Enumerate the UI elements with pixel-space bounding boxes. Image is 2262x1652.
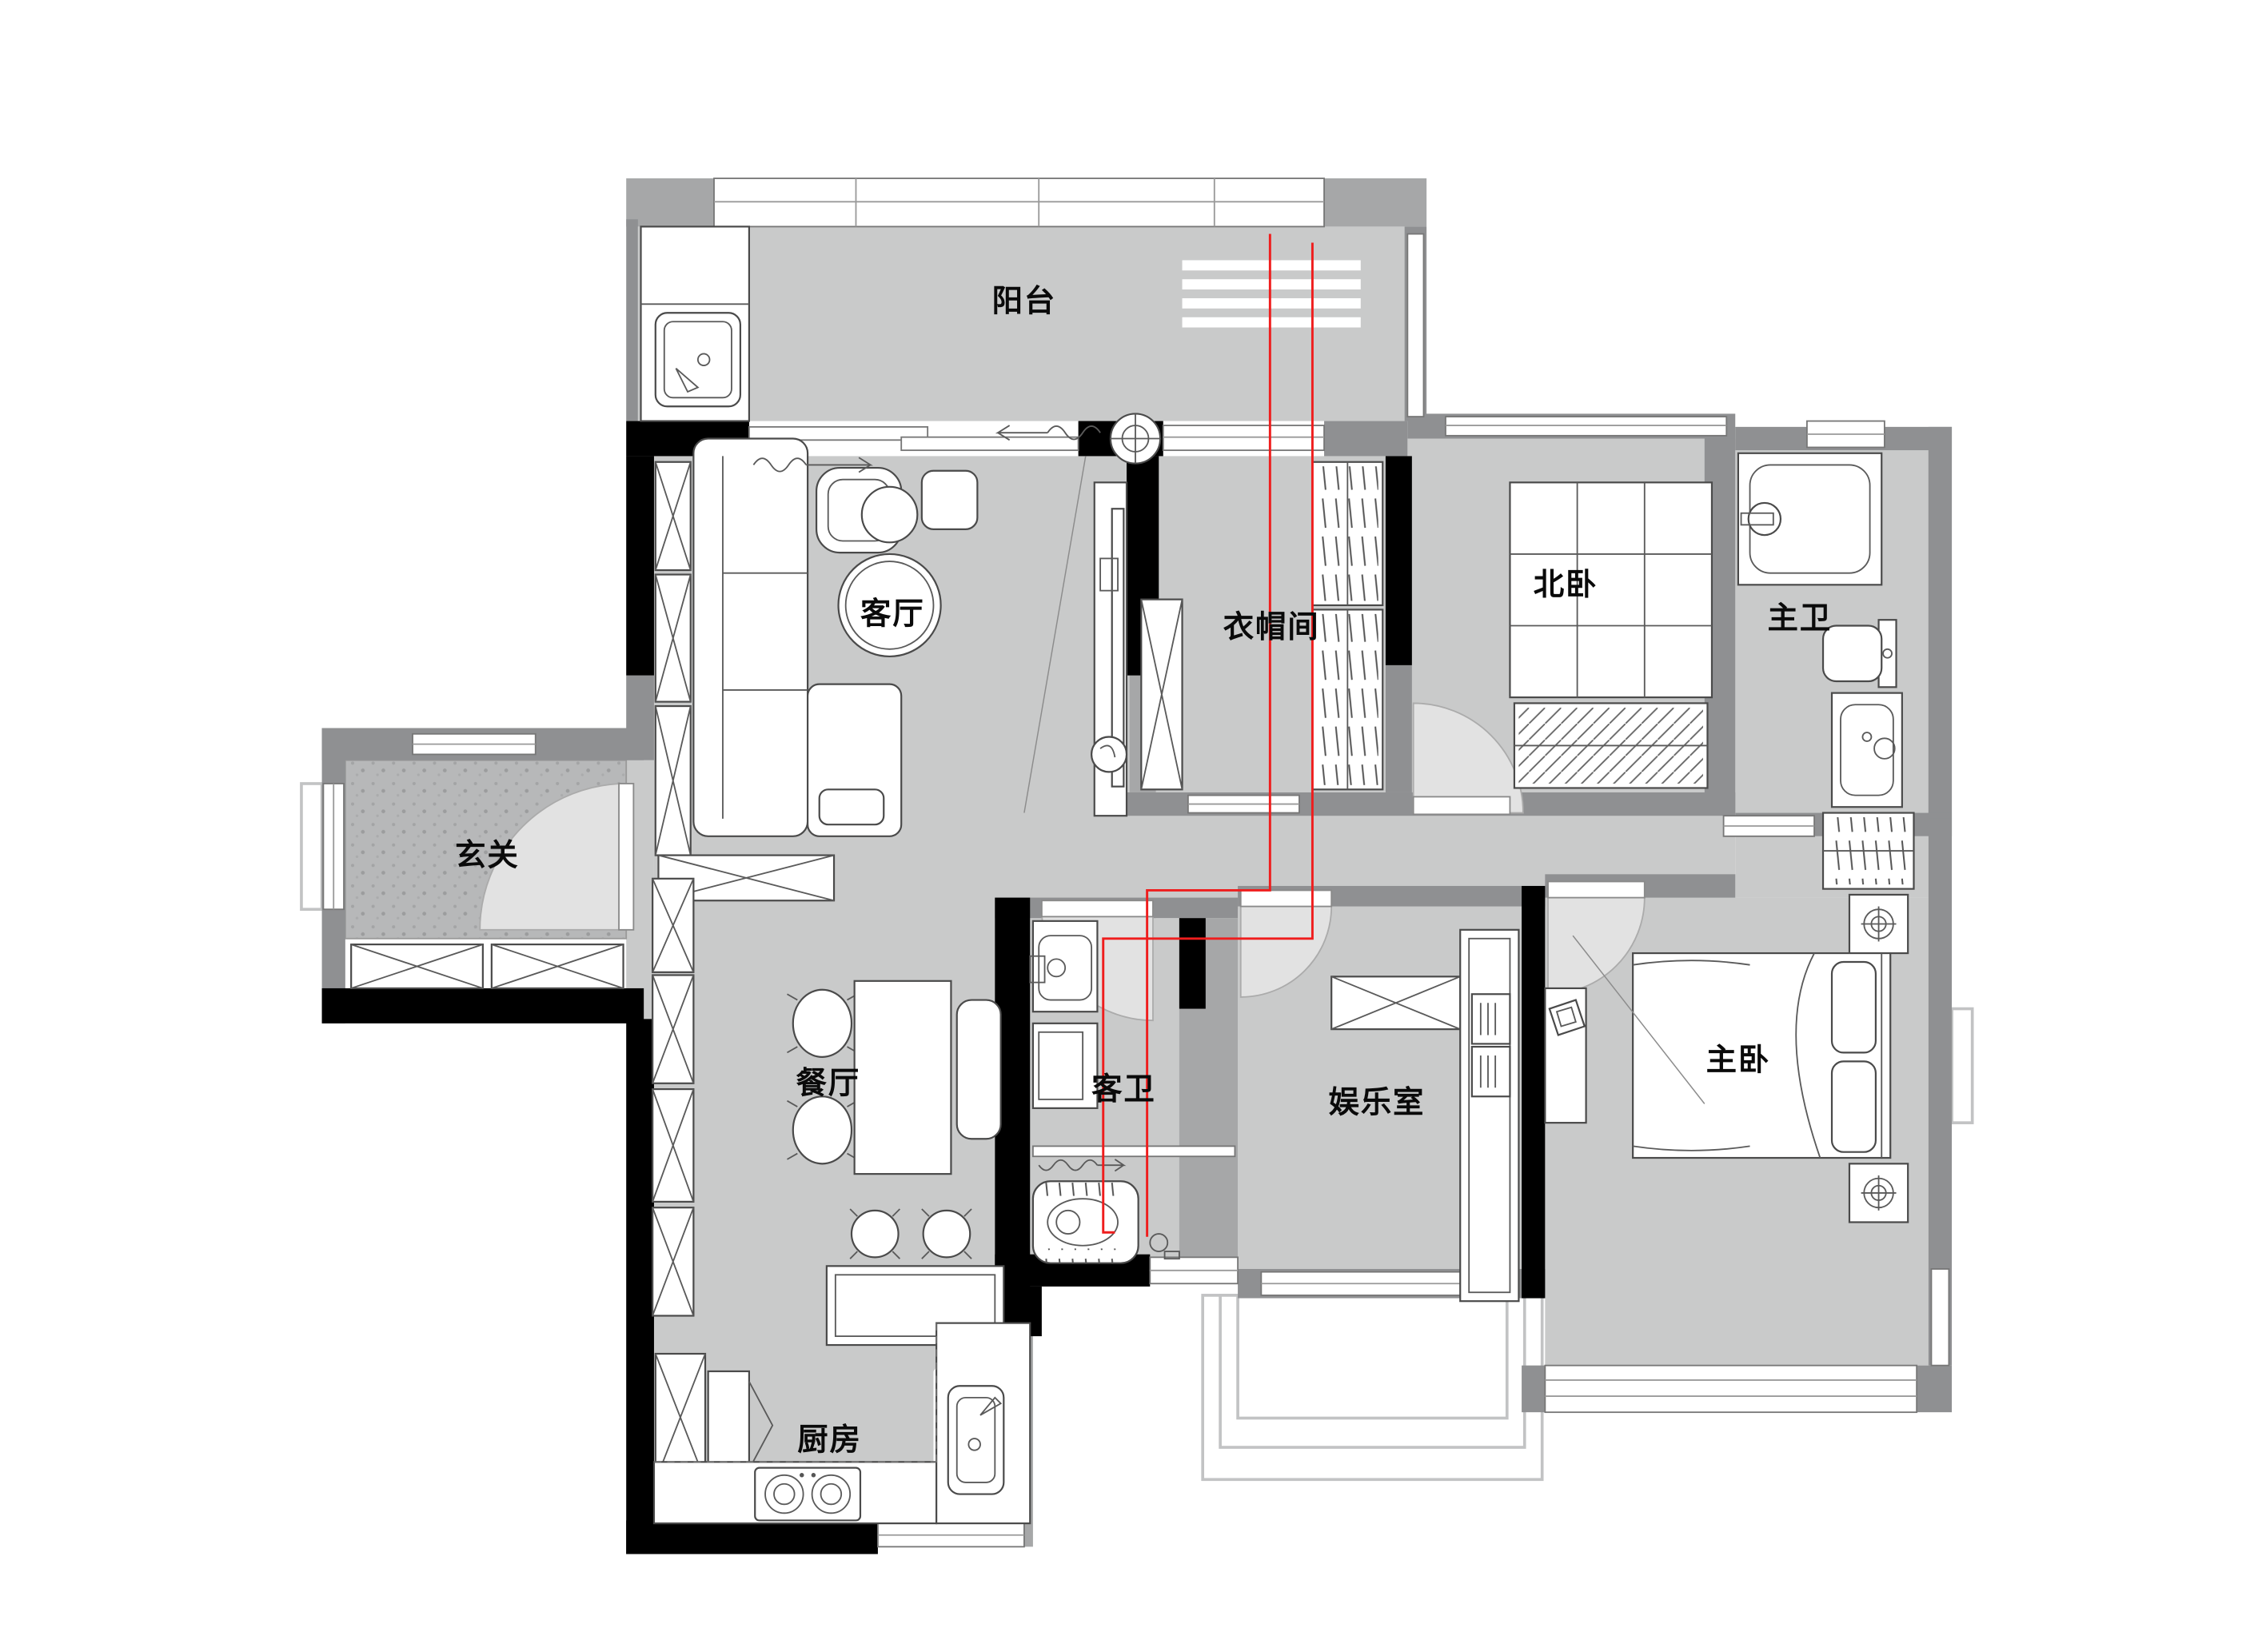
label-entryway: 玄关 (455, 837, 520, 873)
balcony-top-window (714, 178, 1324, 226)
squat-toilet (1033, 1181, 1139, 1263)
bench (957, 1000, 1001, 1139)
label-master-bedroom: 主卧 (1706, 1042, 1771, 1078)
master-bathroom-door-sill (1724, 816, 1814, 836)
nightstand-lamp (1849, 1163, 1908, 1222)
exterior-sill (301, 784, 322, 909)
balcony-side-window (1407, 234, 1423, 417)
laundry-cabinet (640, 226, 748, 421)
vanity-sink (1832, 693, 1902, 808)
label-guest-bathroom: 客卫 (1091, 1071, 1156, 1107)
label-north-bedroom: 北卧 (1534, 567, 1598, 603)
guest-sink (1030, 921, 1097, 1012)
entry-cabinets (351, 944, 623, 988)
exterior-ledge (1952, 1009, 1973, 1123)
hall-cabinet-column (652, 879, 693, 1316)
kitchen-sink (948, 1386, 1004, 1494)
shoe-cabinet-x (1141, 600, 1182, 790)
entry-side-window (323, 784, 344, 909)
master-bathroom-window (1807, 421, 1885, 448)
label-living-room: 客厅 (860, 597, 925, 632)
side-table (922, 471, 978, 529)
stove (755, 1468, 860, 1521)
master-bedroom-side-window (1931, 1269, 1949, 1366)
cloakroom-entry-sill (1188, 796, 1299, 813)
floor-plan-canvas: 阳台 客厅 衣帽间 北卧 主卫 玄关 餐厅 客卫 娱乐室 主卧 厨房 (0, 0, 2262, 1652)
speaker-icon (1091, 736, 1127, 772)
label-master-bathroom: 主卫 (1767, 601, 1832, 636)
tv-wall-unit (1091, 482, 1127, 816)
entry-top-window (413, 734, 536, 755)
label-balcony: 阳台 (992, 283, 1057, 319)
bookshelf (1460, 930, 1518, 1301)
kitchen-sill (878, 1523, 1024, 1546)
master-bedroom-bottom-window (1545, 1366, 1917, 1413)
cabinet-x (1331, 976, 1460, 1029)
clothes-rack-upper (1312, 462, 1382, 605)
north-bedroom-furniture (1510, 482, 1712, 788)
label-cloakroom: 衣帽间 (1223, 609, 1320, 645)
bay-window (1203, 1295, 1542, 1479)
label-entertainment: 娱乐室 (1329, 1084, 1426, 1120)
north-bedroom-window (1446, 417, 1726, 436)
nightstand-lamp (1849, 895, 1908, 953)
label-dining-room: 餐厅 (796, 1066, 860, 1102)
rug (1514, 703, 1708, 788)
dressing-table (1545, 988, 1586, 1123)
cabinet-x-column (656, 462, 691, 856)
dining-table (855, 981, 951, 1174)
wardrobe (1823, 813, 1913, 889)
bathtub (1738, 453, 1881, 585)
washer (1033, 1024, 1098, 1108)
label-kitchen: 厨房 (797, 1423, 862, 1458)
guest-bathroom-sill (1150, 1257, 1238, 1283)
floor-plan-page: 阳台 客厅 衣帽间 北卧 主卫 玄关 餐厅 客卫 娱乐室 主卧 厨房 (0, 0, 2262, 1652)
clothes-rack-lower (1312, 609, 1382, 789)
toilet (1823, 620, 1896, 687)
cloakroom-top-window (1163, 425, 1324, 450)
fan-coil-icon (1111, 413, 1160, 463)
